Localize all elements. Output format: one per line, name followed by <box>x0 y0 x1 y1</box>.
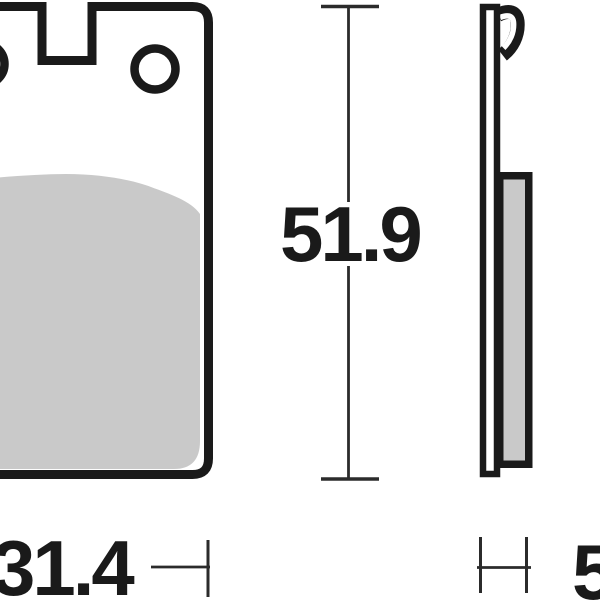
brake-pad-diagram <box>0 0 600 600</box>
side-view <box>483 7 529 474</box>
height-dimension-label: 51.9 <box>274 202 426 266</box>
friction-material-front <box>0 174 200 469</box>
rivet-hole-left <box>0 44 5 85</box>
dimension-width <box>151 540 210 597</box>
thickness-dimension-label: 5 <box>572 540 600 600</box>
rivet-hole-right <box>135 49 176 90</box>
width-dimension-label: 31.4 <box>0 536 132 600</box>
front-view <box>0 7 209 475</box>
backplate-side <box>483 7 497 474</box>
technical-drawing: 51.9 31.4 5 <box>0 0 600 600</box>
friction-material-side <box>500 176 529 465</box>
dimension-thickness <box>477 537 531 593</box>
